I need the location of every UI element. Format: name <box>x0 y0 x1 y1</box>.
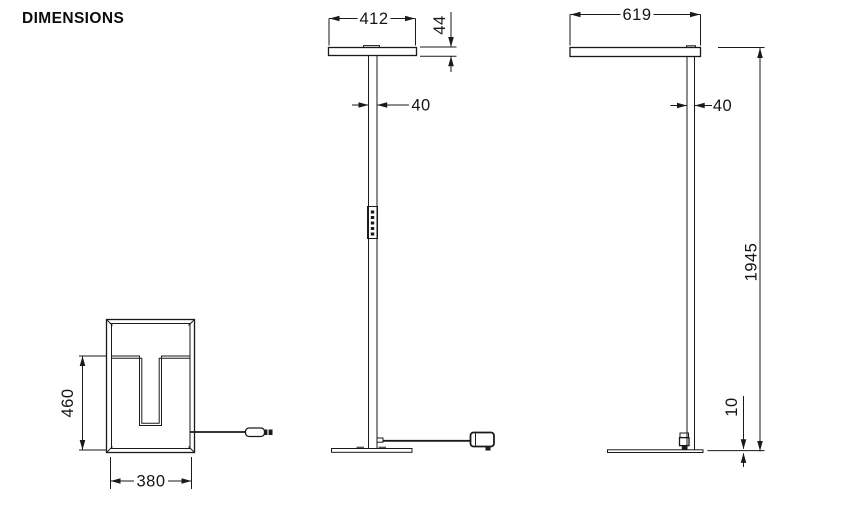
cable-outlet <box>377 438 383 442</box>
dim-base-height: 10 <box>708 396 765 467</box>
power-plug <box>246 428 265 437</box>
dimensions-drawing: DIMENSIONS 460 <box>0 0 842 508</box>
dim-pole-width: 40 <box>352 97 431 115</box>
side-head-mount <box>687 46 696 48</box>
adapter-prong <box>486 447 491 451</box>
side-head-outline <box>570 48 701 57</box>
power-adapter <box>471 433 495 447</box>
head-depth-value: 619 <box>622 6 651 24</box>
front-head-mount <box>364 46 380 48</box>
front-view: 412 44 40 <box>329 10 495 453</box>
side-base-plate <box>608 450 704 453</box>
dim-head-height: 44 <box>420 12 457 72</box>
base-depth-value: 460 <box>59 388 77 417</box>
head-height-value: 44 <box>431 15 449 34</box>
base-height-value: 10 <box>723 397 741 416</box>
top-view-inner-outline <box>112 324 191 449</box>
top-view-outer-outline <box>107 320 195 453</box>
base-width-value: 380 <box>136 473 165 491</box>
base-slot-outline <box>112 356 191 426</box>
dim-head-depth: 619 <box>570 6 701 46</box>
dim-head-width: 412 <box>329 10 416 46</box>
side-view: 619 40 1945 10 <box>570 6 765 468</box>
dim-base-depth: 460 <box>59 356 107 450</box>
side-pole <box>687 57 695 451</box>
corner-chamfers <box>107 320 195 453</box>
base-top-view: 460 380 <box>59 320 273 491</box>
dim-base-width: 380 <box>111 457 192 491</box>
front-head-outline <box>329 48 417 56</box>
head-width-value: 412 <box>359 10 388 28</box>
front-pole <box>369 56 378 449</box>
driver-box <box>680 433 690 450</box>
total-height-value: 1945 <box>743 243 761 282</box>
dim-pole-depth: 40 <box>671 97 733 115</box>
front-base-plate <box>332 449 413 453</box>
side-pole-width-value: 40 <box>713 97 732 115</box>
base-slot-inner <box>112 358 191 423</box>
pole-width-value: 40 <box>411 97 430 115</box>
technical-drawing: 460 380 <box>0 0 842 508</box>
control-buttons <box>371 211 374 236</box>
